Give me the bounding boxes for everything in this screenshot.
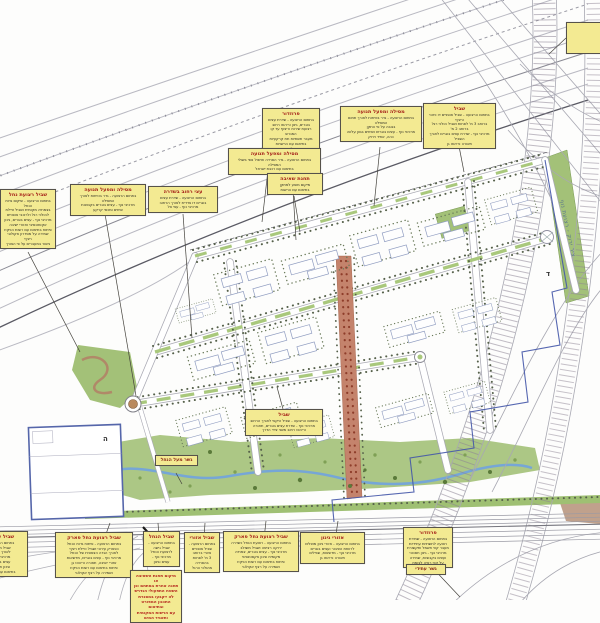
label-title: מסילה ומפעל תנועה	[232, 151, 318, 157]
label-text-line: בתיאום עם רכבת ישראל	[232, 167, 318, 172]
label-title: שביל הנחל	[147, 534, 177, 540]
label-text-line: תאורה וריהוט גן	[304, 556, 362, 561]
label-title: שביל עירוני	[0, 534, 25, 540]
annotation-label-stream-park-trail-1: שביל רצועת נחל פארקבתחום הרצועה - פיתוח …	[55, 532, 133, 578]
label-text-line: ותאגיד המים	[134, 615, 179, 620]
label-title: תחנת שאיבה	[271, 176, 320, 182]
label-text-line: בתחום הרצועה - שמירת	[407, 537, 450, 542]
annotation-label-urban-trail-west: שביל עירוניבתחום הרצועה -שביל משולבלאורך…	[0, 531, 28, 577]
label-title: שביל רצועת נחל פארק	[59, 535, 130, 541]
label-text-line: קו מסדרון נוף	[570, 25, 600, 31]
label-text-line: תאורה וריהוט גן	[427, 142, 493, 147]
label-text-line: השטח התפעולי הנדרש	[134, 588, 179, 593]
annotation-label-street-trees: עצי רחוב בשדרהבתחום הרצועה - שדרת עציםבו…	[148, 186, 218, 213]
label-title: פרוזדור	[266, 111, 317, 117]
label-title: מסילה ומפעל תנועה	[74, 187, 143, 193]
label-title: שביל	[249, 412, 320, 418]
label-text-line: שמירה על מסדרון אקולוגי רציף	[4, 232, 53, 242]
label-text-line: בתיאום עם הרשות	[271, 188, 320, 193]
annotation-labels-layer: קו מסדרון נוףפרוזדורבתחום הרצועה - שדרת …	[0, 0, 600, 600]
label-text-line: בתחום הרצועה - גדר בטיחות לאורך תחום המס…	[344, 116, 419, 126]
label-text-line: בתחום הרצועה - שביל אופניים דו כיווני ור…	[427, 113, 493, 123]
label-text-line: בתחום הרצועה - אזורי גינון מוצלים	[304, 542, 362, 547]
annotation-label-future-bridge: גשר עתידי	[406, 564, 446, 575]
label-text-line: כהה, אחיד וירוק	[344, 135, 419, 140]
annotation-label-railway-traffic-3: מסילה ומפעל תנועהבתחום הרצועה - גדר בטיח…	[70, 184, 146, 216]
annotation-label-railway-traffic-1: מסילה ומפעל תנועהבתחום הרצועה - גדר בטיח…	[340, 106, 422, 142]
label-text-line: מרכיבי נוף - שדרת עצים בוגרים לאורך השבי…	[427, 132, 493, 142]
label-text-line: גשר עתידי	[410, 567, 443, 573]
label-text-line: ברוחב 3 מ' לפחות ושביל הולכי רגל ברוחב 2…	[427, 122, 493, 132]
label-text-line: בתחום הרצועה - פיתוח גדות הנחל	[59, 542, 130, 547]
label-text-line: שיחים ומכסי קרקע	[74, 208, 143, 213]
label-text-line: בתחום הרצועה - רצועת הנחל כשדרה	[227, 541, 296, 546]
label-title: אזורי גינון	[304, 535, 362, 541]
annotation-label-stream-park-trail-2: שביל רצועת נחל פארקבתחום הרצועה - רצועת …	[223, 531, 299, 572]
annotation-label-landscape-corridor-line: קו מסדרון נוף	[566, 22, 600, 54]
label-text-line: מרכיבי נוף - עצי צל	[152, 205, 215, 210]
label-text-line: ושמירה על רצף אקולוגי	[59, 571, 130, 576]
annotation-label-stream-bridge: גשר מעל הנחל	[155, 455, 198, 466]
annotation-label-stream-trail-west: שביל רצועת נחלבתחום הרצועה - שיקום גדות …	[0, 189, 56, 249]
label-title: עצי רחוב בשדרה	[152, 189, 215, 195]
label-text-line: התכנון המפורט ובתיאום	[134, 599, 179, 610]
annotation-label-corridor-2: פרוזדורבתחום הרצועה - שמירתרצועה לתשתיות…	[403, 527, 453, 568]
label-text-line: מעבר תשתיות תת קרקעיות בתיאום עם הרשויות	[266, 137, 317, 147]
label-text-line: עצים וגינון	[147, 560, 177, 565]
annotation-label-regional-trail: שביל אזוריבתחום הרצועה -שביל אופנייםאזור…	[184, 532, 220, 573]
label-text-line: אקסטנסיבי ואזורי ישיבה	[4, 223, 53, 228]
label-text-line: בתחום הרצועה - שביל היקפי לאורך הרחוב	[249, 419, 320, 424]
annotation-label-trail-1: שבילבתחום הרצועה - שביל אופניים דו כיוונ…	[423, 103, 496, 149]
label-title: פרוזדור	[407, 530, 450, 536]
label-text-line: בתחום הרצועה -	[188, 542, 217, 547]
label-text-line: וריהוט רחוב משני צידי הדרך	[249, 428, 320, 433]
label-title: שביל רצועת נחל	[4, 192, 53, 198]
label-text-line: בתחום הרצועה -	[147, 541, 177, 546]
label-text-line: גישור במעברים על פי הצורך	[4, 242, 53, 247]
label-text-line: בתחום הרצועה - שדרת עצים	[152, 196, 215, 201]
label-text-line: בתחום הרצועה - גדר הפרדה וטיפול נופי בשו…	[232, 158, 318, 168]
annotation-label-railway-traffic-2: מסילה ומפעל תנועהבתחום הרצועה - גדר הפרד…	[228, 148, 321, 175]
annotation-label-pump-station: תחנת שאיבהמיקום מוצע למתקןבתיאום עם הרשו…	[267, 173, 323, 195]
label-title: מסילה ומפעל תנועה	[344, 109, 419, 115]
label-text-line: מיקום תחנת השאיבה או	[134, 573, 179, 584]
label-text-line: מהולכי הרגל	[188, 566, 217, 571]
annotation-label-gardening-areas: אזורי גינוןבתחום הרצועה - אזורי גינון מו…	[300, 532, 365, 564]
label-text-line: בתחום הרצועה - שיקום גדות הנחל	[4, 199, 53, 209]
label-text-line: בתחום הרצועה - גדר בטיחות לאורך המסילה	[74, 194, 143, 204]
label-text-line: בתיאום עם הרשות	[0, 570, 25, 575]
annotation-label-trail-2: שבילבתחום הרצועה - שביל היקפי לאורך הרחו…	[245, 409, 323, 436]
label-text-line: ושמירה על רצף אקולוגי	[227, 565, 296, 570]
site-plan-page: { "colors": { "label_bg": "#f3ea92", "la…	[0, 0, 600, 600]
label-title: שביל אזורי	[188, 535, 217, 541]
label-text-line: גשר מעל הנחל	[159, 458, 195, 464]
label-title: שביל	[427, 106, 493, 112]
annotation-label-pump-station-note: מיקום תחנת השאיבה אותחנה אחרת במתחם וכןה…	[130, 570, 182, 623]
label-text-line: בתחום הרצועה - שדרת עצים בוגרים, גינון ו…	[266, 118, 317, 128]
label-title: שביל רצועת נחל פארק	[227, 534, 296, 540]
annotation-label-stream-access-trail: שביל הנחלבתחום הרצועה -שביל גישהלרצועת ה…	[143, 531, 180, 567]
label-text-line: רצועת שירות וריצוף עד קו המגרש	[266, 127, 317, 137]
